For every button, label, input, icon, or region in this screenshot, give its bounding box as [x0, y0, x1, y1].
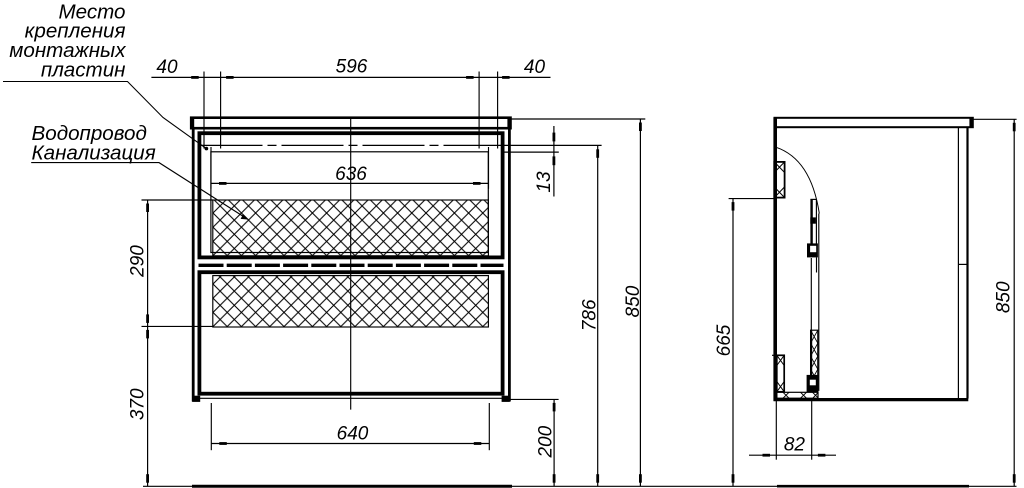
svg-text:596: 596 — [336, 57, 368, 78]
svg-text:13: 13 — [534, 171, 555, 193]
svg-text:82: 82 — [784, 434, 806, 455]
svg-text:290: 290 — [128, 245, 149, 278]
svg-text:40: 40 — [524, 57, 546, 78]
svg-text:636: 636 — [335, 164, 367, 185]
svg-text:Канализация: Канализация — [32, 142, 156, 165]
svg-text:370: 370 — [128, 388, 149, 420]
svg-text:665: 665 — [714, 324, 735, 356]
svg-text:850: 850 — [994, 281, 1015, 313]
svg-text:200: 200 — [535, 425, 556, 458]
svg-text:40: 40 — [156, 57, 178, 78]
svg-text:850: 850 — [623, 285, 644, 317]
svg-text:пластин: пластин — [41, 58, 126, 81]
svg-text:640: 640 — [337, 424, 369, 445]
svg-text:786: 786 — [580, 299, 601, 331]
